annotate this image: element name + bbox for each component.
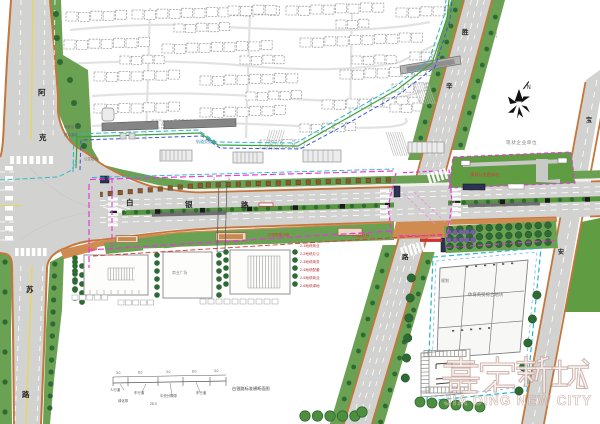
svg-text:规划公交首末站: 规划公交首末站 bbox=[470, 171, 499, 178]
svg-text:1: 1 bbox=[228, 177, 230, 181]
svg-text:安: 安 bbox=[558, 248, 564, 256]
svg-text:胜: 胜 bbox=[461, 27, 469, 36]
svg-text:轨道交通站: 轨道交通站 bbox=[196, 138, 216, 144]
svg-text:白: 白 bbox=[126, 197, 134, 207]
svg-text:2-5地块商业: 2-5地块商业 bbox=[300, 275, 320, 280]
svg-text:克: 克 bbox=[39, 132, 47, 142]
svg-text:3.0: 3.0 bbox=[166, 370, 171, 374]
svg-text:辛: 辛 bbox=[446, 81, 453, 90]
svg-text:体育商贸综合地块: 体育商贸综合地块 bbox=[468, 291, 504, 298]
svg-text:8.0: 8.0 bbox=[192, 370, 197, 374]
svg-text:宝: 宝 bbox=[586, 116, 592, 124]
svg-text:公交站台: 公交站台 bbox=[84, 156, 98, 161]
svg-text:红线宽度25米: 红线宽度25米 bbox=[268, 232, 290, 237]
svg-text:绿化带: 绿化带 bbox=[118, 398, 129, 403]
svg-text:人行道: 人行道 bbox=[110, 387, 121, 392]
svg-text:规划: 规划 bbox=[441, 277, 449, 283]
svg-text:2-2地块办公: 2-2地块办公 bbox=[300, 251, 320, 256]
svg-text:苏: 苏 bbox=[26, 284, 34, 294]
svg-text:中央分隔带: 中央分隔带 bbox=[160, 393, 178, 398]
svg-text:车行道: 车行道 bbox=[196, 390, 207, 395]
svg-text:路: 路 bbox=[241, 200, 249, 210]
svg-text:25.0: 25.0 bbox=[150, 402, 157, 406]
svg-text:银: 银 bbox=[185, 199, 193, 209]
svg-text:2-3地块商务: 2-3地块商务 bbox=[300, 259, 320, 264]
svg-text:2-4地块配套: 2-4地块配套 bbox=[300, 267, 320, 272]
svg-text:JIA DING NEW CITY: JIA DING NEW CITY bbox=[444, 393, 592, 408]
svg-text:路: 路 bbox=[402, 252, 409, 261]
svg-text:白银路标准横断面图: 白银路标准横断面图 bbox=[232, 385, 270, 392]
svg-text:2-6地块绿地: 2-6地块绿地 bbox=[300, 283, 320, 288]
svg-text:现状企业单位: 现状企业单位 bbox=[506, 139, 537, 146]
svg-text:1.5层站台: 1.5层站台 bbox=[352, 232, 370, 238]
svg-text:车行道: 车行道 bbox=[134, 390, 145, 395]
svg-text:商业广场: 商业广场 bbox=[172, 270, 187, 275]
svg-text:3.0: 3.0 bbox=[214, 369, 219, 373]
svg-text:2-1地块商业: 2-1地块商业 bbox=[300, 243, 320, 248]
svg-text:路: 路 bbox=[22, 389, 30, 399]
svg-text:阿: 阿 bbox=[38, 88, 46, 97]
svg-text:规划通道: 规划通道 bbox=[64, 132, 78, 137]
svg-text:3.0: 3.0 bbox=[116, 371, 121, 375]
svg-text:8.0: 8.0 bbox=[138, 371, 143, 375]
svg-text:地铁出入口: 地铁出入口 bbox=[64, 124, 81, 129]
svg-text:N: N bbox=[527, 85, 531, 91]
svg-text:1: 1 bbox=[213, 177, 215, 181]
